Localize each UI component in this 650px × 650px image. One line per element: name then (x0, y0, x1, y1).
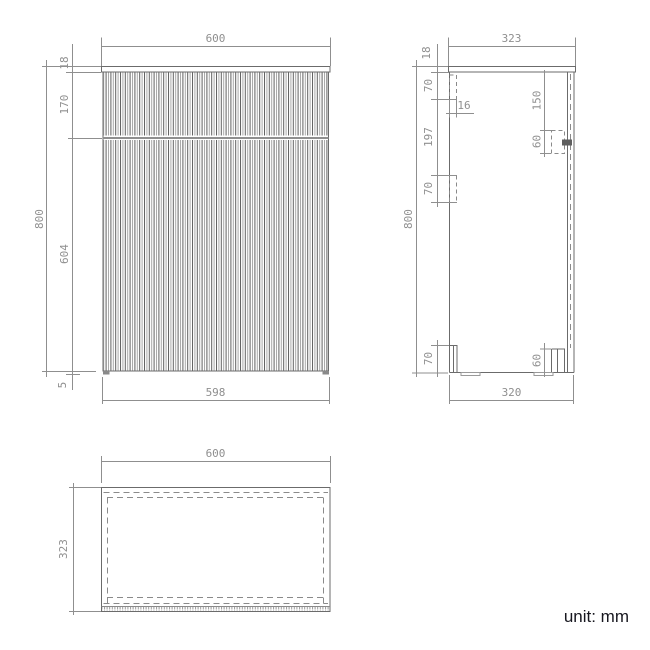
side-top-panel (449, 67, 576, 73)
dim-front-panel-width: 598 (206, 386, 226, 399)
dim-side-top-rail-drop: 70 (422, 79, 435, 92)
dim-front-overall-height: 800 (33, 209, 46, 229)
front-feet (103, 371, 329, 375)
side-extension-lines (412, 38, 576, 405)
dim-side-bottom-left-block: 70 (422, 352, 435, 365)
top-panel-outline (102, 488, 331, 612)
dim-side-bracket-height: 60 (531, 135, 544, 148)
dim-side-rail-thickness: 16 (457, 99, 470, 112)
top-fluted-edge-texture (102, 607, 330, 611)
front-top-panel (102, 67, 331, 73)
technical-drawing-canvas: 600 800 18 170 604 5 598 323 18 70 16 19… (0, 0, 650, 650)
dim-side-bottom-right-block: 60 (531, 354, 544, 367)
dim-front-bottom-clearance: 5 (56, 382, 69, 389)
side-mid-rail-hidden (450, 176, 457, 203)
dim-front-door-height: 604 (58, 244, 71, 264)
dim-front-top-thickness: 18 (58, 56, 71, 69)
side-dimension-lines (417, 44, 576, 401)
dim-side-rail-spacing: 197 (422, 127, 435, 147)
side-handle-notch (562, 140, 572, 146)
dim-front-overall-width: 600 (206, 32, 226, 45)
dim-top-overall-depth: 323 (57, 539, 70, 559)
side-top-hang-rail-hidden (450, 75, 457, 100)
side-view: 323 18 70 16 197 70 150 60 800 70 60 320 (402, 32, 576, 404)
side-dimensions: 323 18 70 16 197 70 150 60 800 70 60 320 (402, 32, 576, 404)
dim-side-overall-depth: 323 (502, 32, 522, 45)
dim-front-drawer-height: 170 (58, 95, 71, 115)
top-view: 600 323 (57, 447, 331, 615)
unit-note: unit: mm (564, 607, 629, 626)
dim-side-body-depth: 320 (502, 386, 522, 399)
dim-side-overall-height: 800 (402, 209, 415, 229)
side-bottom-blocks (450, 346, 565, 373)
dim-side-bracket-drop: 150 (531, 91, 544, 111)
drawing-svg: 600 800 18 170 604 5 598 323 18 70 16 19… (0, 0, 650, 650)
dim-side-mid-rail-height: 70 (422, 182, 435, 195)
front-view: 600 800 18 170 604 5 598 (33, 32, 331, 404)
front-fluted-panel (103, 72, 329, 371)
dim-top-overall-width: 600 (206, 447, 226, 460)
side-body-outline (450, 72, 575, 373)
dim-side-top-thickness: 18 (420, 46, 433, 59)
